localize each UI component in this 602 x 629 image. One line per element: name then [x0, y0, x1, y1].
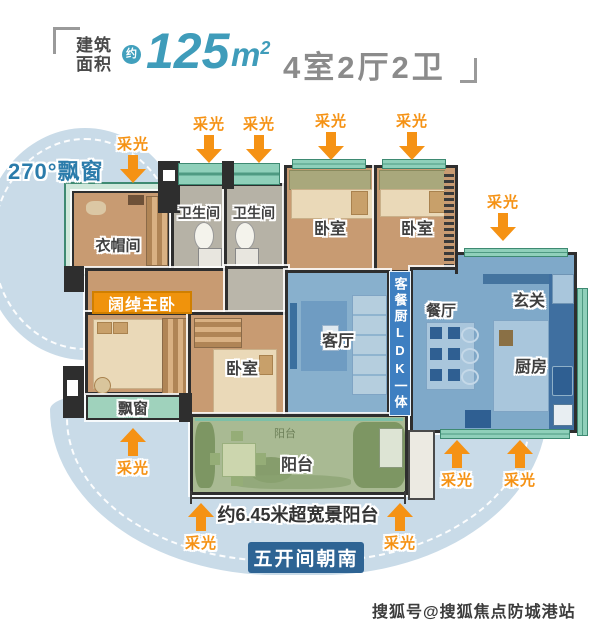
arrow-up-icon	[507, 440, 533, 468]
daylight-label: 采光	[504, 469, 536, 490]
wall-niche	[67, 380, 78, 396]
washer	[379, 428, 403, 468]
room-label-bedroom-middle: 卧室	[226, 355, 258, 379]
arrow-down-icon	[120, 155, 146, 183]
daylight-callout: 采光	[193, 112, 225, 163]
balcony-chair	[231, 431, 243, 441]
room-label-foyer: 玄关	[513, 287, 545, 311]
wardrobe	[379, 170, 445, 190]
balcony-table	[222, 443, 256, 477]
room-label-living: 客厅	[322, 327, 354, 351]
room-master-bedroom	[85, 312, 192, 395]
pillow	[97, 322, 112, 334]
shower	[198, 248, 222, 270]
pillow	[351, 191, 368, 215]
foyer-window	[464, 248, 568, 257]
daylight-callout: 采光	[117, 132, 149, 183]
balcony-print-label: 阳台	[274, 425, 296, 441]
room-label-kitchen: 厨房	[515, 353, 547, 377]
master-bedroom-badge: 阔绰主卧	[92, 291, 192, 314]
balcony-chair	[256, 453, 266, 465]
room-label-bedroom-top1: 卧室	[314, 215, 346, 239]
toilet-icon	[194, 222, 214, 250]
wardrobe	[194, 318, 242, 348]
room-label-bedroom-top2: 卧室	[401, 215, 433, 239]
arrow-down-icon	[490, 213, 516, 241]
daylight-label: 采光	[487, 191, 519, 212]
daylight-callout: 采光	[441, 440, 473, 491]
wardrobe	[289, 170, 371, 190]
cabinet	[128, 195, 144, 205]
stool	[94, 377, 111, 394]
arrow-up-icon	[444, 440, 470, 468]
arrow-up-icon	[120, 428, 146, 456]
daylight-label: 采光	[193, 113, 225, 134]
room-label-bathroom-2: 卫生间	[233, 203, 275, 223]
dining-chair	[430, 369, 442, 381]
room-label-bay-window: 飘窗	[118, 398, 148, 419]
plants	[231, 475, 351, 489]
balcony-window-line	[195, 418, 403, 421]
arrow-down-icon	[318, 132, 344, 160]
arrow-down-icon	[399, 132, 425, 160]
plate-ring	[461, 369, 479, 385]
ac-niche	[163, 170, 175, 181]
dining-chair	[430, 348, 442, 360]
approx-badge: 约	[122, 45, 141, 64]
dimension-line	[191, 497, 406, 499]
arrow-down-icon	[246, 135, 272, 163]
wall-pillar	[158, 161, 180, 213]
wardrobe	[162, 318, 190, 394]
balcony-chair	[210, 453, 220, 465]
daylight-label: 采光	[315, 110, 347, 131]
daylight-label: 采光	[396, 110, 428, 131]
tv-cabinet	[290, 303, 297, 369]
daylight-callout: 采光	[243, 112, 275, 163]
room-label-dining: 餐厅	[426, 300, 456, 321]
arrow-up-icon	[188, 503, 214, 531]
wardrobe-hatch	[444, 171, 454, 267]
area-unit-exponent: 2	[260, 38, 270, 58]
dining-chair	[448, 369, 460, 381]
dining-chair	[448, 327, 460, 339]
daylight-label: 采光	[185, 532, 217, 553]
rug	[86, 201, 106, 215]
fridge	[552, 274, 574, 304]
area-label-line1: 建筑	[76, 36, 112, 55]
daylight-callout: 采光	[185, 503, 217, 554]
watermark: 搜狐号@搜狐焦点防城港站	[372, 598, 576, 622]
dining-chair	[448, 348, 460, 360]
room-label-cloakroom: 衣帽间	[95, 235, 140, 256]
area-label: 建筑 面积	[76, 36, 112, 74]
area-unit: m2	[231, 36, 270, 74]
room-label-bathroom-1: 卫生间	[178, 203, 220, 223]
toilet-icon	[235, 222, 255, 250]
wall-divider	[222, 161, 234, 189]
daylight-callout: 采光	[384, 503, 416, 554]
daylight-callout: 采光	[396, 109, 428, 160]
kitchen-side-window	[577, 288, 588, 436]
coffee-machine	[499, 330, 513, 346]
dining-chair	[430, 327, 442, 339]
room-label-balcony: 阳台	[281, 451, 313, 475]
floorplan-poster: 建筑 面积 约 125 m2 4室2厅2卫 衣帽间 卫生间 卫生间	[0, 0, 602, 629]
balcony-width-text: 约6.45米超宽景阳台	[217, 501, 378, 527]
daylight-callout: 采光	[117, 428, 149, 479]
daylight-label: 采光	[117, 133, 149, 154]
arrow-up-icon	[387, 503, 413, 531]
kitchen-bottom-window	[440, 429, 570, 439]
corridor	[225, 266, 288, 314]
arrow-down-icon	[196, 135, 222, 163]
pillow	[429, 191, 445, 213]
daylight-label: 采光	[243, 113, 275, 134]
pillow	[113, 322, 128, 334]
daylight-callout: 采光	[315, 109, 347, 160]
room-bathroom-2	[224, 183, 286, 274]
daylight-callout: 采光	[487, 190, 519, 241]
bedroom2-window	[382, 159, 446, 169]
pillow	[259, 355, 273, 375]
room-layout-text: 4室2厅2卫	[283, 42, 446, 87]
area-unit-base: m	[231, 36, 260, 73]
wall-pillar	[179, 393, 192, 422]
daylight-callout: 采光	[504, 440, 536, 491]
south-facing-badge: 五开间朝南	[248, 542, 364, 573]
lower-cabinet	[465, 410, 491, 428]
stove-icon	[552, 366, 573, 396]
room-ldk-area	[410, 267, 577, 433]
daylight-label: 采光	[441, 469, 473, 490]
ac-platform	[408, 430, 435, 500]
daylight-label: 采光	[384, 532, 416, 553]
balcony-chair	[231, 476, 243, 486]
bedroom1-window	[292, 159, 366, 169]
area-value: 125	[146, 26, 229, 76]
sofa	[352, 295, 387, 395]
wall-pillar	[64, 266, 84, 292]
plate-ring	[461, 327, 479, 343]
room-cloakroom	[72, 191, 170, 269]
daylight-label: 采光	[117, 457, 149, 478]
header-corner-bracket-bottomright	[460, 58, 477, 83]
area-label-line2: 面积	[76, 55, 112, 74]
ldk-banner: 客餐厨LDK一体	[389, 271, 411, 416]
bay-window-270-callout: 270°飘窗	[8, 154, 104, 186]
plate-ring	[461, 348, 479, 364]
sink	[553, 404, 573, 426]
